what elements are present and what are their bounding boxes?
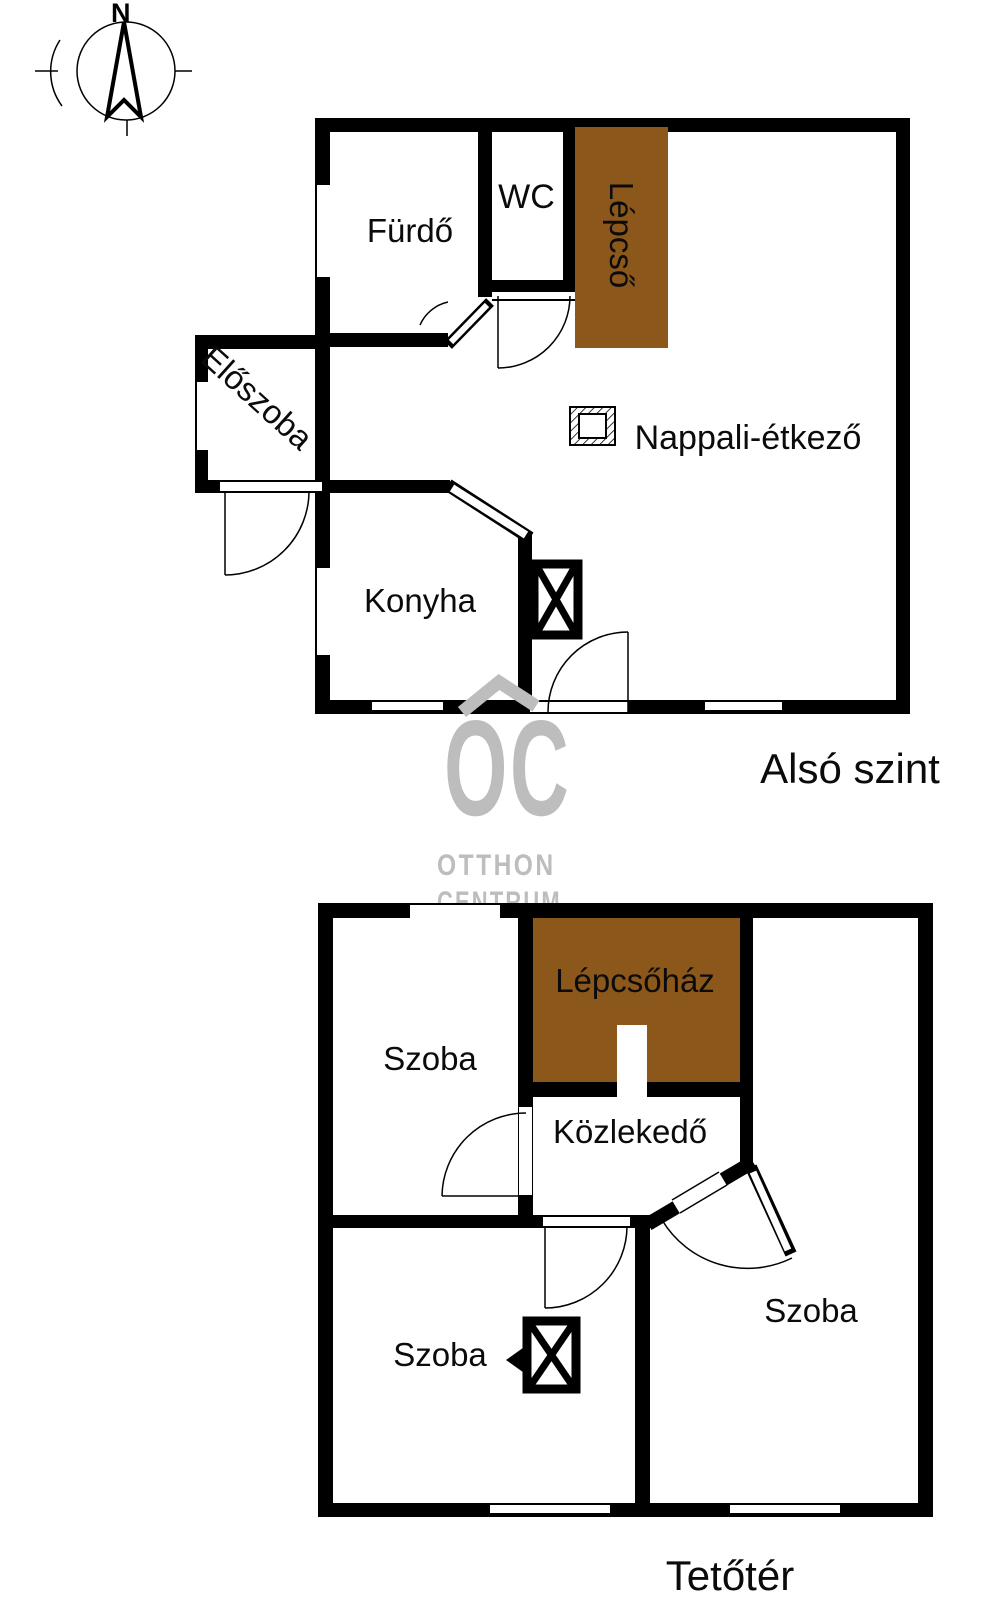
floorplan-page: { "compass": { "north_label": "N" }, "wa… [0, 0, 999, 1605]
room-label-lepcso: Lépcső [601, 155, 641, 315]
f2-window-top [410, 903, 500, 918]
watermark-monogram: OC [444, 700, 571, 836]
room-label-szoba-e: Szoba [736, 1290, 886, 1332]
room-label-kozlekedo: Közlekedő [540, 1111, 720, 1153]
f2-wall-left [318, 903, 333, 1517]
compass-rose-icon [35, 22, 192, 136]
f1-chimney-symbol [534, 564, 578, 635]
f1-wall-konyha-nappali-divider [518, 535, 532, 714]
room-label-furdo: Fürdő [325, 208, 495, 253]
f2-wall-lepcsohaz-right [740, 918, 753, 1165]
room-label-konyha: Konyha [330, 578, 510, 623]
f1-window-eloszoba-left [195, 382, 208, 450]
f2-chimney-symbol [506, 1321, 576, 1389]
f1-door-eloszoba-opening [220, 480, 322, 493]
compass-north-label: N [111, 0, 131, 29]
room-label-lepcsohaz: Lépcsőház [545, 960, 725, 1002]
room-label-wc: WC [478, 176, 575, 218]
f1-window-bottom-konyha [372, 700, 443, 714]
f1-door-symbols [225, 296, 628, 712]
f1-door-terrace [530, 700, 628, 714]
f2-window-bottom-right [730, 1503, 840, 1517]
f2-wall-szoba-lepcsohaz-divider [518, 918, 533, 1097]
f2-stairs-opening [617, 1025, 647, 1082]
f1-window-bottom-right [705, 700, 782, 714]
f2-door-kozlekedo-szoba [518, 1107, 533, 1195]
f2-window-bottom-left [490, 1503, 610, 1517]
f2-door-kozlekedo-szoba-sw [543, 1215, 630, 1228]
floor-caption-tetoter: Tetőtér [590, 1550, 870, 1602]
f1-door-wc-sill [492, 292, 575, 301]
f2-wall-rooms-vertical-divider [635, 1218, 650, 1517]
floor-caption-also-szint: Alsó szint [710, 743, 990, 795]
room-label-szoba-nw: Szoba [355, 1038, 505, 1080]
f1-wall-furdo-bottom [315, 333, 448, 347]
f2-diagonal-wall [648, 1162, 753, 1224]
f2-wall-bottom [318, 1503, 933, 1517]
room-label-szoba-sw: Szoba [365, 1334, 515, 1376]
f1-window-konyha-left [315, 568, 330, 655]
f1-wall-wc-bottom [478, 280, 575, 292]
f1-wall-right [896, 118, 910, 714]
room-label-nappali: Nappali-étkező [598, 416, 898, 461]
watermark-line1: OTTHON [437, 851, 556, 881]
f2-door-lepcsohaz-opening [617, 1082, 647, 1097]
f2-wall-right [918, 903, 933, 1517]
